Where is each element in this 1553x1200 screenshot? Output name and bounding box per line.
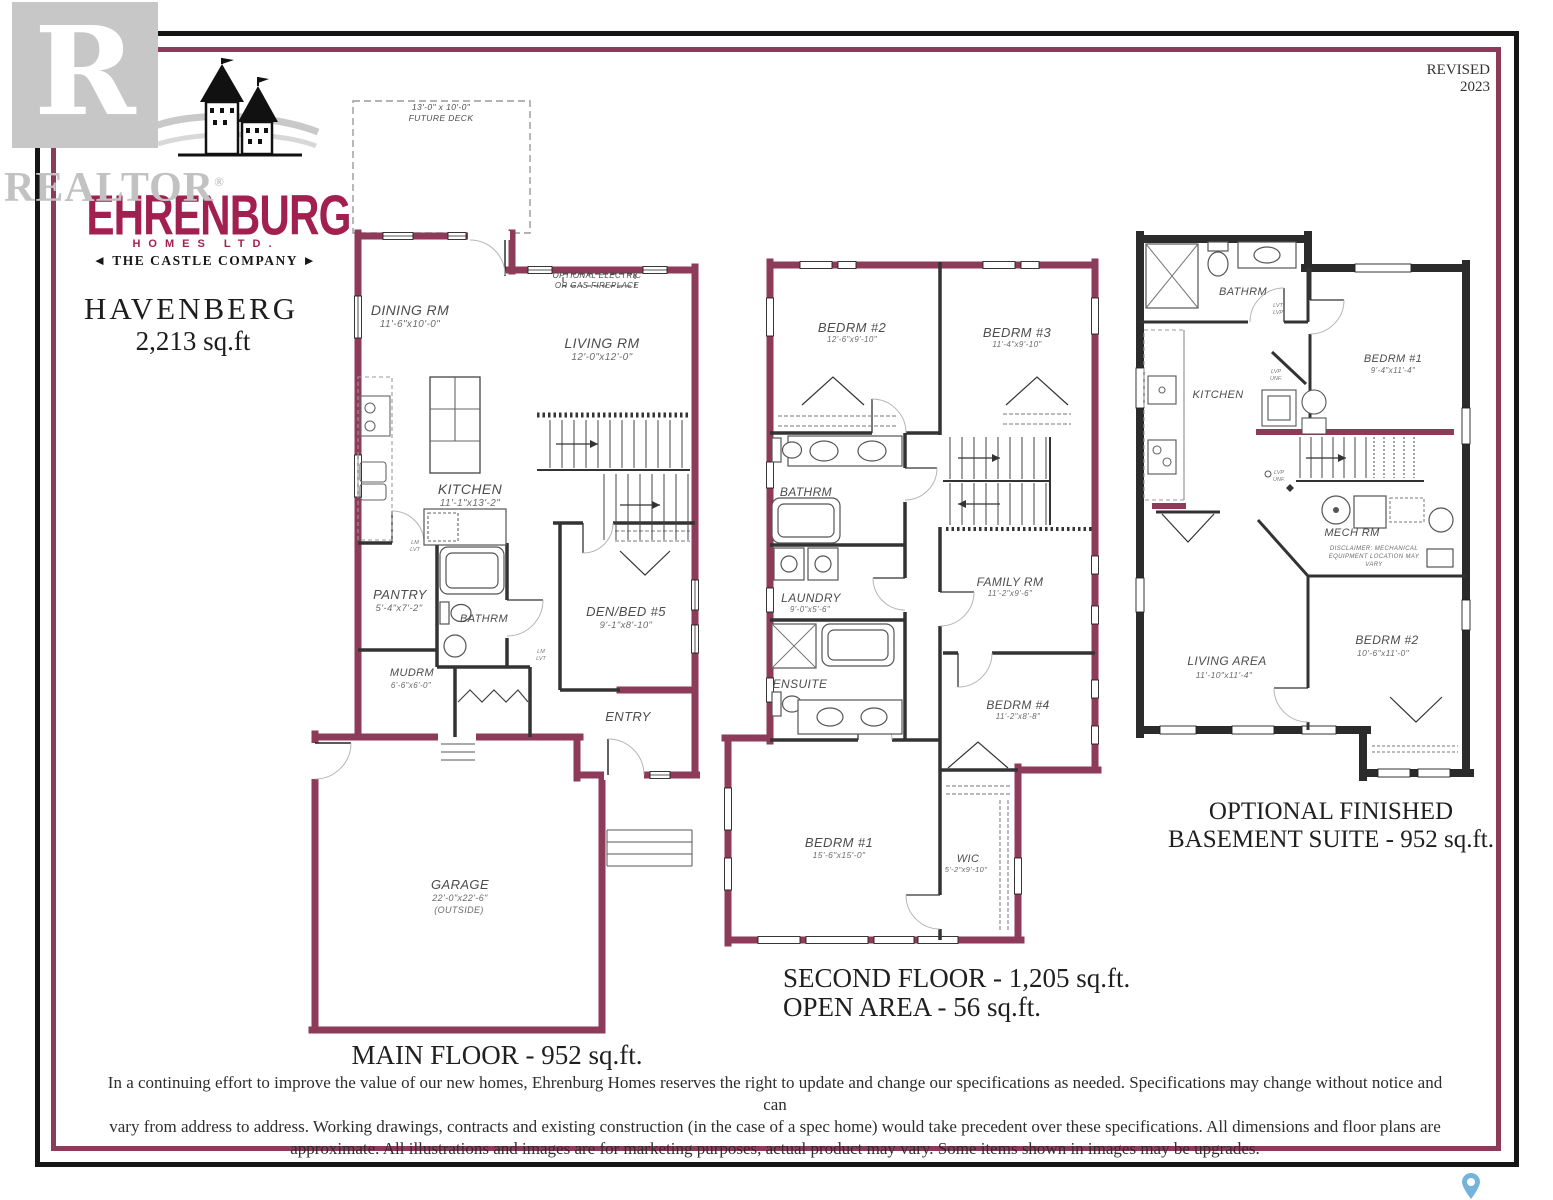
room-label-bed4: BEDRM #4 [986,699,1049,711]
room-dims-bsmt-bed2: 10'-6"x11'-0" [1357,649,1409,658]
floor-tag: LVP [1273,310,1283,316]
kitchen-fixtures [358,377,506,545]
room-label-bathrm: BATHRM [460,614,508,625]
room-label-mudrm: MUDRM [390,668,434,679]
deck-label: FUTURE DECK [409,114,474,123]
realtor-watermark-text: REALTOR [4,165,214,211]
sink-icon [444,635,466,657]
room-dims-bed1: 15'-6"x15'-0" [813,851,866,860]
water-heater-icon [1429,508,1453,532]
room-dims-garage: 22'-0"x22'-6" [432,894,488,903]
sink-icon [1302,390,1326,414]
realtor-watermark: REALTOR® [4,164,225,212]
fireplace-note-1: OPTIONAL ELECTRIC [553,272,642,280]
disclaimer-line-2: vary from address to address. Working dr… [95,1116,1455,1138]
room-label-bsmt-bath: BATHRM [1219,287,1267,298]
room-dims-den: 9'-1"x8'-10" [600,621,653,631]
room-label-bsmt-kitchen: KITCHEN [1192,390,1243,401]
floor-drain-icon [1286,484,1294,492]
room-dims-pantry: 5'-4"x7'-2" [376,604,423,614]
second-floor-caption: SECOND FLOOR - 1,205 sq.ft. [783,963,1130,994]
appliance-icon [1262,390,1296,426]
stairs [1296,437,1424,481]
toilet-icon [772,438,781,462]
open-area-caption: OPEN AREA - 56 sq.ft. [783,992,1041,1023]
floor-tag: LM [411,540,419,546]
floor-tag: UNF. [1270,376,1282,382]
fireplace-note-2: OR GAS FIREPLACE [555,282,639,290]
room-label-family: FAMILY RM [977,576,1044,588]
room-dims-living: 12'-0"x12'-0" [571,353,632,363]
brand-tagline: ◄ THE CASTLE COMPANY ► [60,253,350,269]
stairs [943,437,1093,529]
room-label-den: DEN/BED #5 [586,605,666,618]
main-floor-caption: MAIN FLOOR - 952 sq.ft. [351,1040,642,1071]
deck-dims: 13'-0" x 10'-0" [412,103,470,112]
disclaimer-line-3: approximate. All illustrations and image… [95,1138,1455,1160]
bifold-closet-doors [458,690,528,702]
floor-tag: LVP [1274,470,1284,476]
room-label-ensuite: ENSUITE [773,678,828,690]
room-label-garage: GARAGE [431,878,489,891]
brand-homes-ltd: HOMES LTD. [70,238,342,250]
room-dims-kitchen: 11'-1"x13'-2" [440,499,500,509]
room-dims-dining: 11'-6"x10'-0" [380,320,440,330]
room-dims-family: 11'-2"x9'-6" [988,590,1033,598]
sink-icon [360,462,386,482]
room-dims-wic: 5'-2"x9'-10" [945,866,988,874]
floor-tag: LVT [410,547,420,553]
bed3-closet-doors [1006,377,1068,405]
sink-icon [1148,376,1176,404]
svg-text:R: R [34,2,137,143]
beams [1152,432,1454,506]
steps [441,744,692,866]
toilet-icon [772,692,781,716]
room-label-bathrm2: BATHRM [780,486,832,498]
model-name: HAVENBERG [84,291,284,327]
room-label-dining: DINING RM [371,303,449,317]
room-label-entry: ENTRY [605,710,651,723]
mechanical-fixtures [1265,471,1453,567]
room-label-bed1: BEDRM #1 [805,836,873,849]
toilet-icon [440,602,449,624]
room-label-pantry: PANTRY [373,588,427,601]
room-dims-bsmt-bed1: 9'-4"x11'-4" [1371,367,1416,375]
room-note-garage: (OUTSIDE) [434,906,484,915]
floor-tag: UNF. [1273,477,1285,483]
bed2-entry-doors [1390,697,1442,722]
toilet-icon [1208,242,1228,251]
floor-plan-sheet: R REALTOR® EHRENBURG HOMES LTD. ◄ THE CA… [0,0,1553,1200]
room-label-bed3: BEDRM #3 [983,326,1051,339]
exterior-walls [1140,235,1470,777]
registered-mark: ® [214,174,225,189]
floor-tag: LM [537,649,545,655]
floor-tag: LVT [536,656,546,662]
model-area: 2,213 sq.ft [93,326,293,357]
floor-tag: LVP [1271,369,1281,375]
bathroom-fixtures [1146,242,1296,308]
map-pin-icon[interactable] [1460,1172,1482,1200]
exterior-walls [312,233,698,1030]
mech-disclaimer-2: EQUIPMENT LOCATION MAY [1329,554,1420,560]
bed4-closet-doors [948,742,1008,768]
room-dims-mudrm: 6'-6"x6'-0" [391,682,431,690]
realtor-logo-icon: R [12,2,158,148]
room-label-bed2: BEDRM #2 [818,321,886,334]
room-dims-bed4: 11'-2"x8'-8" [996,713,1041,721]
kitchen-fixtures [1144,330,1326,500]
stove-icon [360,396,390,436]
laundry-fixtures [774,548,838,580]
disclaimer: In a continuing effort to improve the va… [95,1072,1455,1160]
room-label-kitchen: KITCHEN [438,482,502,496]
room-dims-bed3: 11'-4"x9'-10" [992,341,1041,349]
basement-drawing [1125,225,1480,785]
room-label-laundry: LAUNDRY [781,592,841,604]
mech-disclaimer-1: DISCLAIMER: MECHANICAL [1330,546,1418,552]
basement-caption-2: BASEMENT SUITE - 952 sq.ft. [1168,826,1494,854]
living-closet-doors [1162,514,1214,542]
bay-band [1372,746,1458,752]
second-floor-drawing [715,245,1110,1025]
floor-tag: LVT [1273,303,1283,309]
room-label-mech: MECH RM [1324,528,1379,539]
room-dims-bed2: 12'-6"x9'-10" [827,336,877,344]
windows [1136,264,1470,777]
room-label-wic: WIC [957,854,980,865]
room-dims-laundry: 9'-0"x5'-6" [790,606,830,614]
mech-disclaimer-3: VARY [1365,562,1382,568]
bathroom-fixtures [440,547,504,657]
bed2-closet-doors [802,377,864,405]
disclaimer-line-1: In a continuing effort to improve the va… [95,1072,1455,1116]
den-closet-doors [620,551,670,575]
room-label-living: LIVING RM [564,336,639,350]
room-dims-bsmt-living: 11'-10"x11'-4" [1196,671,1253,680]
revised-note: REVISED 2023 [1398,62,1490,96]
room-label-bsmt-bed2: BEDRM #2 [1355,634,1418,646]
room-label-bsmt-bed1: BEDRM #1 [1364,354,1422,365]
stove-icon [1148,440,1176,474]
basement-caption-1: OPTIONAL FINISHED [1209,798,1453,826]
main-floor-drawing [300,90,700,1080]
room-label-bsmt-living: LIVING AREA [1187,655,1266,667]
